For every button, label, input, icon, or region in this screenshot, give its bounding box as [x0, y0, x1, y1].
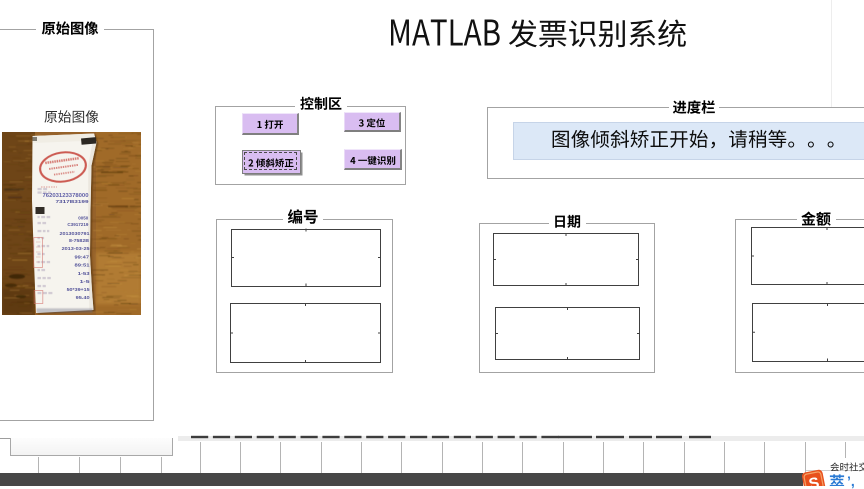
svg-text:7317B3199: 7317B3199 [56, 199, 89, 205]
svg-text:0050: 0050 [78, 215, 88, 220]
svg-text:76203123378000: 76203123378000 [43, 193, 89, 199]
svg-text:1-53: 1-53 [78, 270, 90, 276]
svg-text:89:51: 89:51 [75, 262, 90, 268]
svg-text:99:47: 99:47 [75, 254, 90, 260]
svg-text:95.40: 95.40 [76, 294, 90, 300]
svg-text:8-7582B: 8-7582B [69, 238, 90, 244]
svg-text:1-5: 1-5 [80, 279, 90, 285]
svg-text:50*39+15: 50*39+15 [67, 286, 90, 292]
svg-text:2013-03-25: 2013-03-25 [62, 246, 90, 252]
svg-text:2013030791: 2013030791 [60, 231, 90, 237]
svg-text:C3917219: C3917219 [67, 221, 88, 226]
